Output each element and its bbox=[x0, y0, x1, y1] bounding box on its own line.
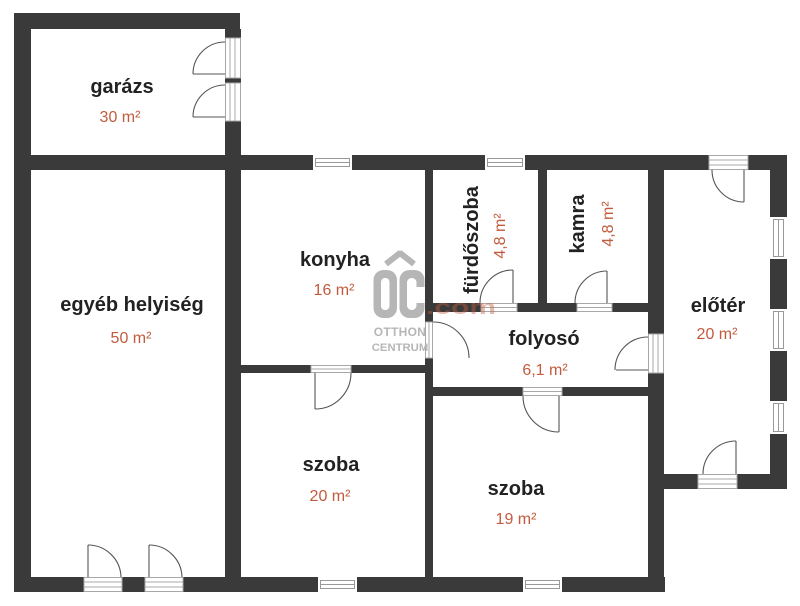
svg-text:30 m²: 30 m² bbox=[100, 109, 142, 126]
svg-text:szoba: szoba bbox=[488, 478, 546, 500]
svg-text:fürdőszoba: fürdőszoba bbox=[461, 185, 483, 294]
svg-text:egyéb helyiség: egyéb helyiség bbox=[60, 294, 203, 316]
svg-text:szoba: szoba bbox=[303, 454, 361, 476]
svg-text:16 m²: 16 m² bbox=[314, 282, 356, 299]
svg-text:OTTHON: OTTHON bbox=[374, 325, 426, 339]
svg-text:4,8 m²: 4,8 m² bbox=[492, 213, 509, 259]
svg-text:előtér: előtér bbox=[691, 295, 746, 317]
svg-text:konyha: konyha bbox=[300, 249, 371, 271]
svg-text:50 m²: 50 m² bbox=[111, 330, 153, 347]
svg-text:6,1 m²: 6,1 m² bbox=[522, 362, 568, 379]
svg-text:CENTRUM: CENTRUM bbox=[372, 342, 428, 354]
svg-text:.com: .com bbox=[426, 297, 496, 319]
svg-text:4,8 m²: 4,8 m² bbox=[600, 201, 617, 247]
svg-text:20 m²: 20 m² bbox=[310, 488, 352, 505]
svg-text:folyosó: folyosó bbox=[508, 328, 579, 350]
svg-text:20 m²: 20 m² bbox=[697, 326, 739, 343]
svg-text:kamra: kamra bbox=[567, 194, 589, 254]
svg-text:garázs: garázs bbox=[90, 76, 153, 98]
svg-text:19 m²: 19 m² bbox=[496, 511, 538, 528]
